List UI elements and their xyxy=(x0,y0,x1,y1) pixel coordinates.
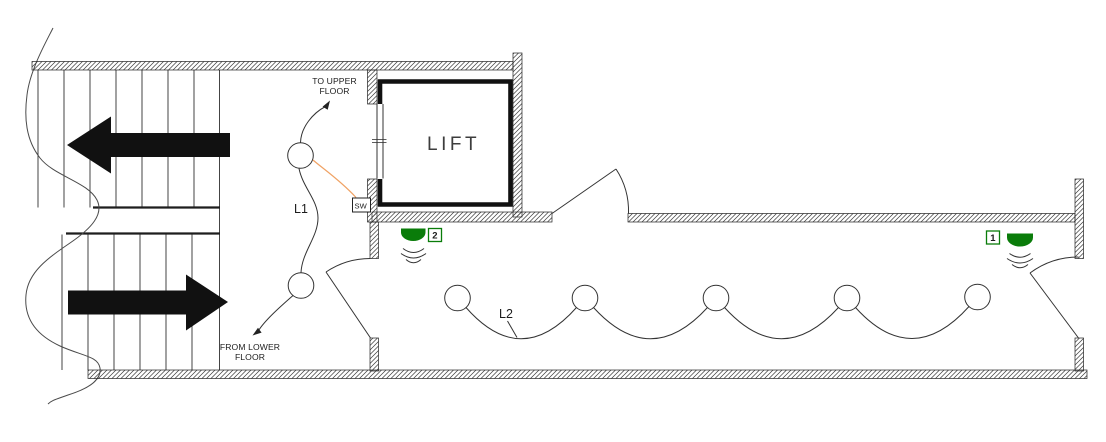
to-upper-floor-label-line2: FLOOR xyxy=(319,86,349,96)
wall-lift-right xyxy=(513,53,522,217)
wall-bottom xyxy=(88,370,1087,379)
switch-label: SW xyxy=(355,202,368,211)
wall-lift-left-upper xyxy=(368,70,378,104)
wall-right-lower xyxy=(1075,338,1084,371)
wall-corridor-left-upper xyxy=(370,222,379,259)
l1-circuit-label: L1 xyxy=(294,202,308,216)
from-lower-floor-label-line2: FLOOR xyxy=(235,352,265,362)
lift-label: LIFT xyxy=(427,134,480,155)
floor-plan-svg: LIFT L1 SW xyxy=(0,0,1106,442)
floor-plan-canvas: LIFT L1 SW xyxy=(0,0,1106,442)
to-upper-floor-label-line1: TO UPPER xyxy=(312,76,357,86)
wall-right-upper xyxy=(1075,179,1084,259)
wall-corridor-left-lower xyxy=(370,338,379,371)
from-lower-floor-label-line1: FROM LOWER xyxy=(220,342,280,352)
l2-circuit-label: L2 xyxy=(499,307,513,321)
sensor-1-number: 1 xyxy=(990,233,996,244)
wall-corridor-top xyxy=(628,214,1075,223)
lift-shaft: LIFT xyxy=(372,80,513,207)
switch-box: SW xyxy=(353,198,371,212)
sensor-2-number: 2 xyxy=(432,230,437,241)
wall-top xyxy=(32,62,513,71)
wall-lobby-bottom xyxy=(372,212,552,222)
